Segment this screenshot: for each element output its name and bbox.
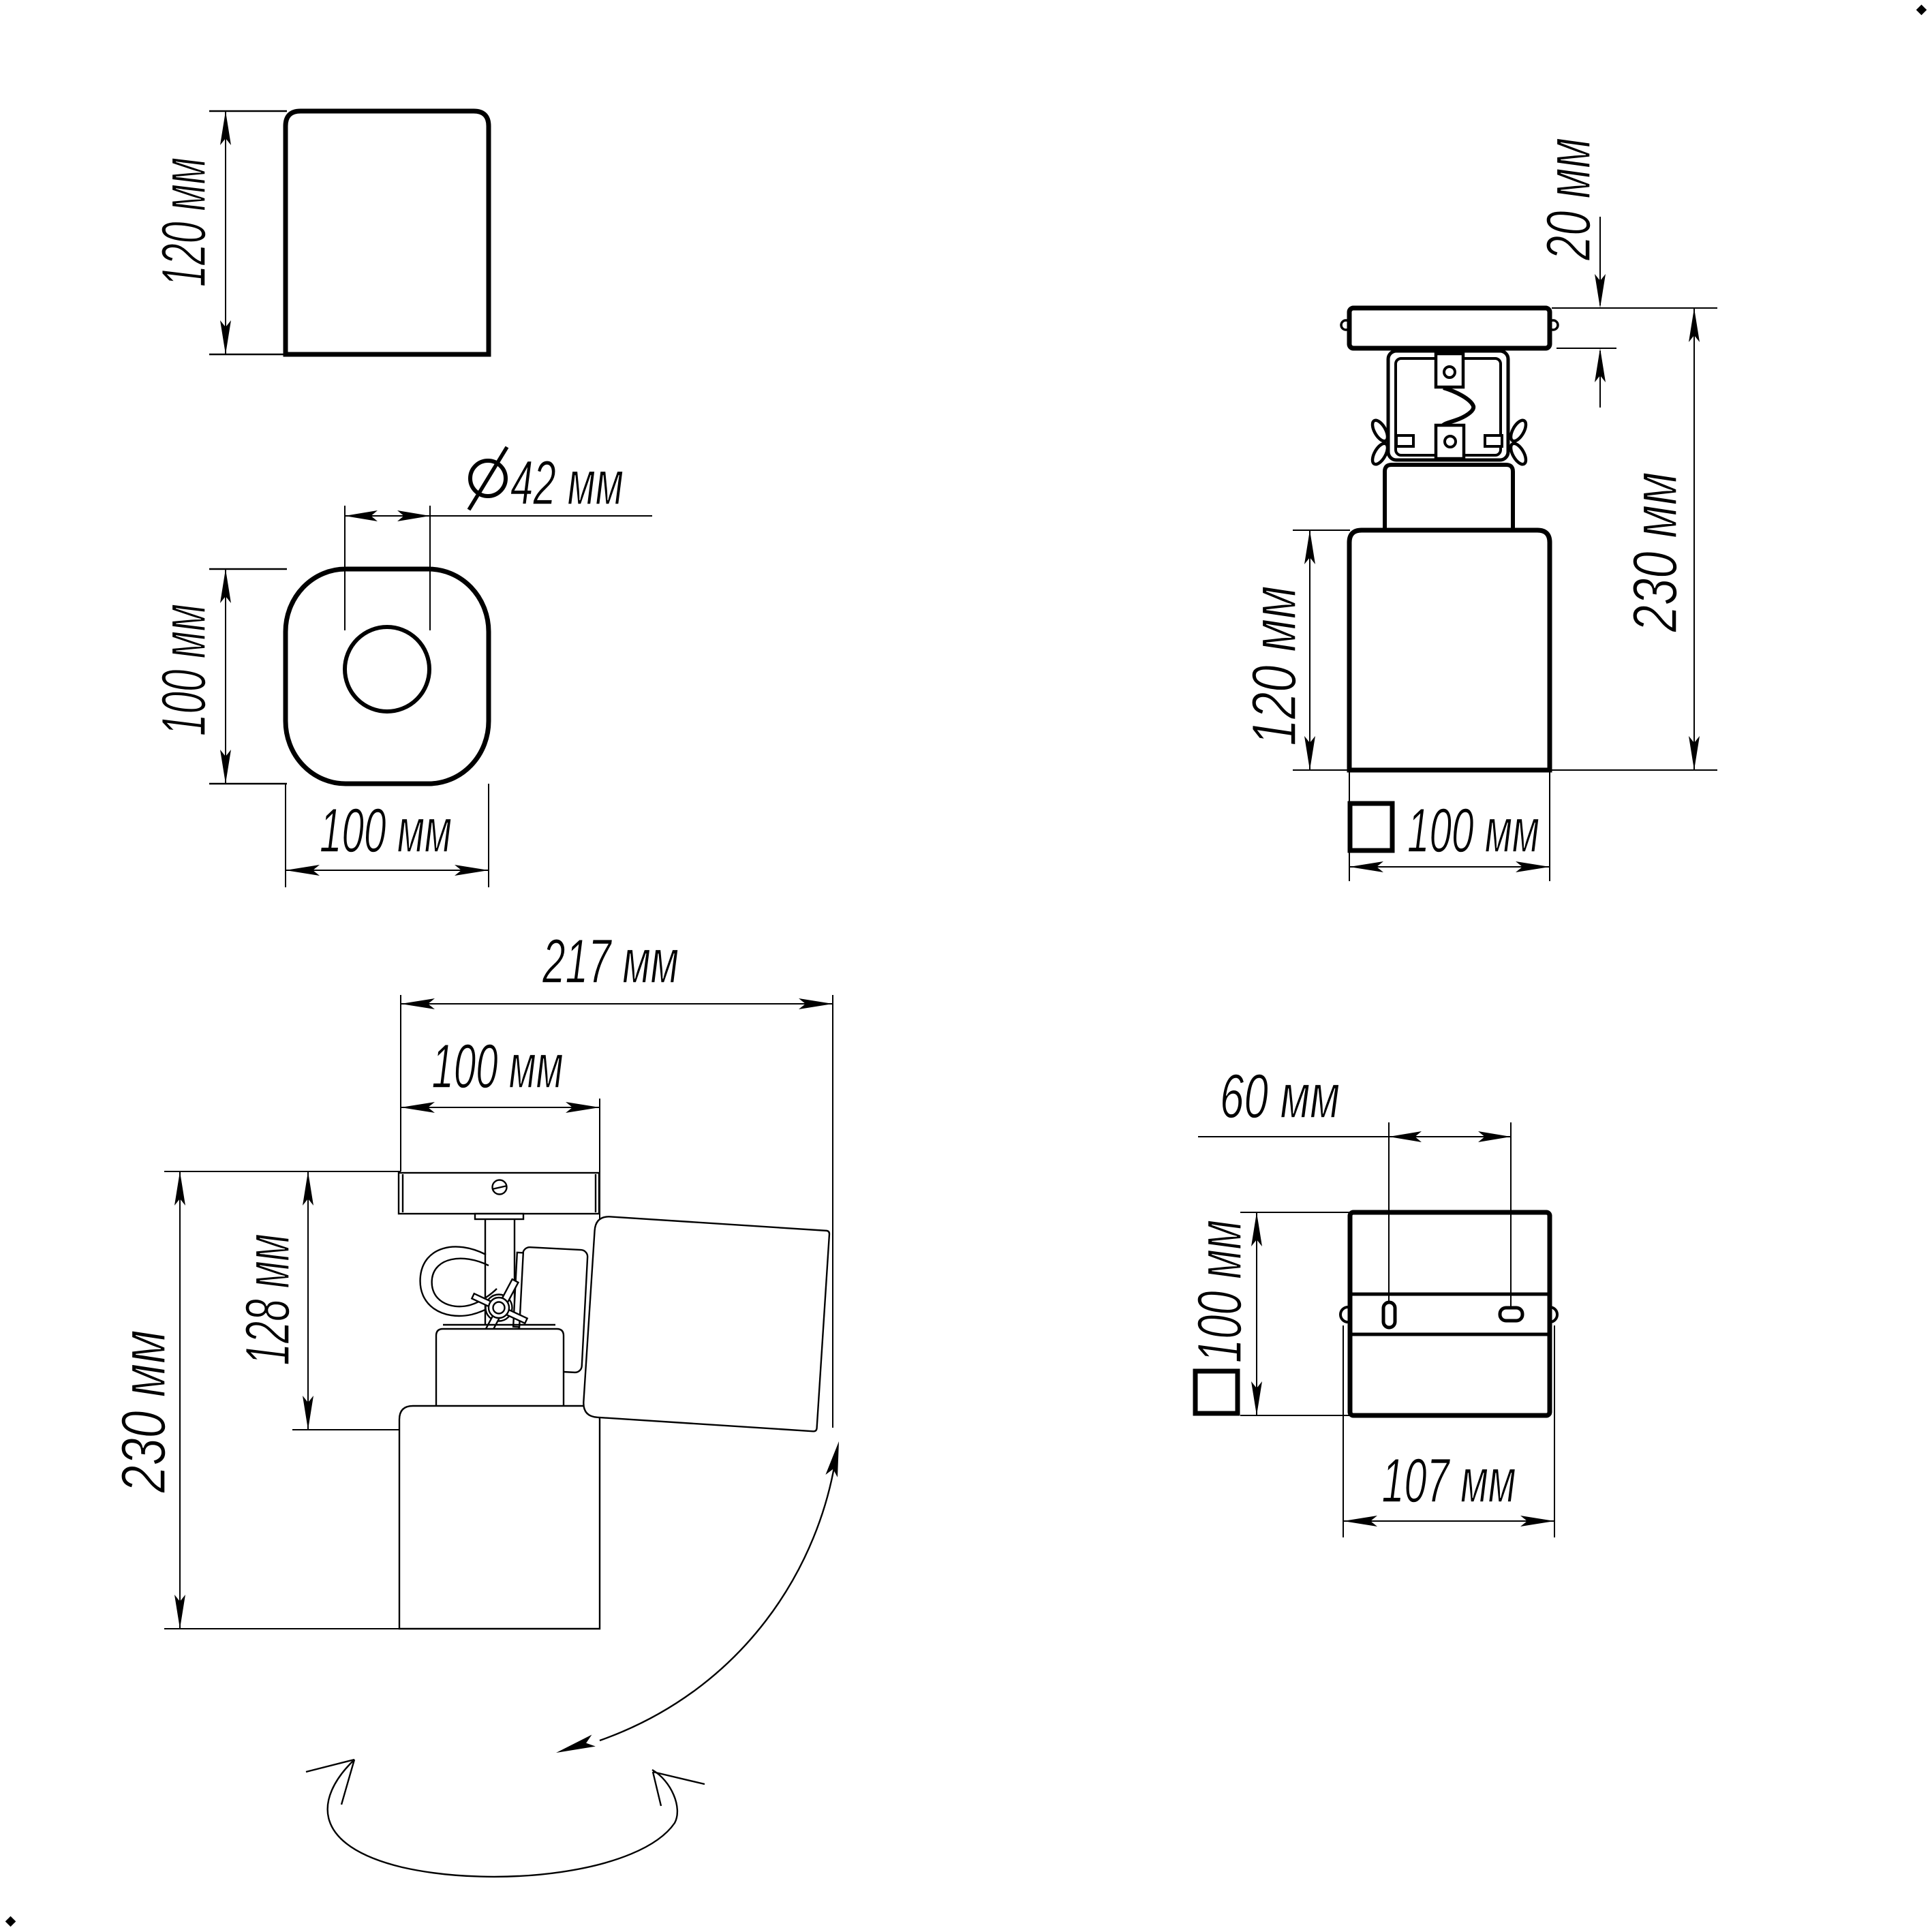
svg-text:100 мм: 100 мм — [320, 796, 452, 865]
svg-text:100 мм: 100 мм — [149, 604, 219, 736]
svg-text:120 мм: 120 мм — [149, 157, 219, 287]
svg-text:230 мм: 230 мм — [109, 1330, 179, 1494]
svg-text:120 мм: 120 мм — [1240, 586, 1309, 746]
svg-text:100 мм: 100 мм — [1185, 1220, 1255, 1363]
svg-text:107 мм: 107 мм — [1382, 1446, 1516, 1516]
svg-text:20 мм: 20 мм — [1534, 138, 1604, 261]
svg-text:230 мм: 230 мм — [1621, 472, 1690, 633]
svg-text:42 мм: 42 мм — [510, 448, 624, 518]
svg-text:60 мм: 60 мм — [1220, 1062, 1340, 1131]
svg-text:128 мм: 128 мм — [233, 1234, 303, 1366]
svg-text:100 мм: 100 мм — [432, 1032, 564, 1101]
svg-text:100 мм: 100 мм — [1407, 796, 1539, 865]
svg-text:217 мм: 217 мм — [542, 927, 679, 996]
